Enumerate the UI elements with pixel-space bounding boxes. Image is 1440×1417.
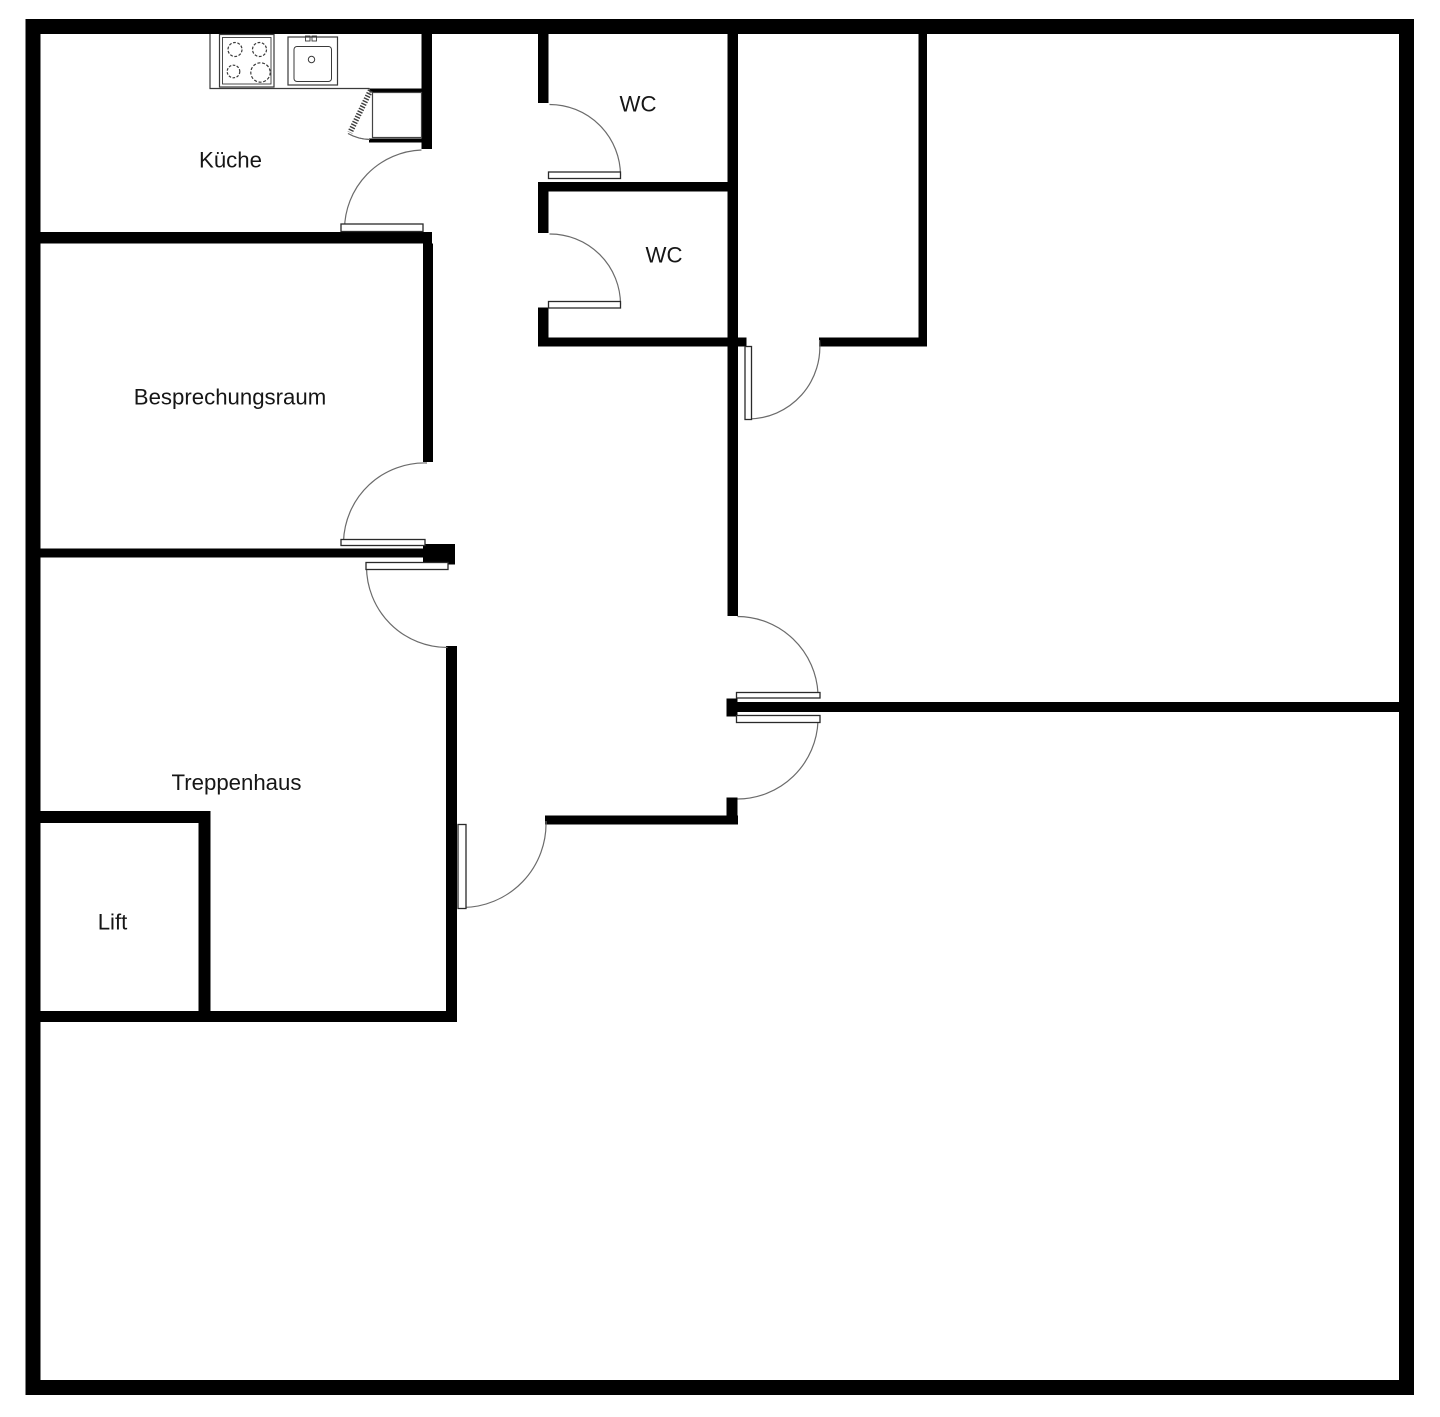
svg-text:Besprechungsraum: Besprechungsraum (134, 385, 326, 410)
svg-text:Treppenhaus: Treppenhaus (172, 770, 302, 795)
svg-text:Küche: Küche (199, 148, 262, 173)
svg-text:WC: WC (646, 243, 683, 268)
svg-text:Lift: Lift (98, 910, 128, 935)
svg-text:WC: WC (620, 92, 657, 117)
